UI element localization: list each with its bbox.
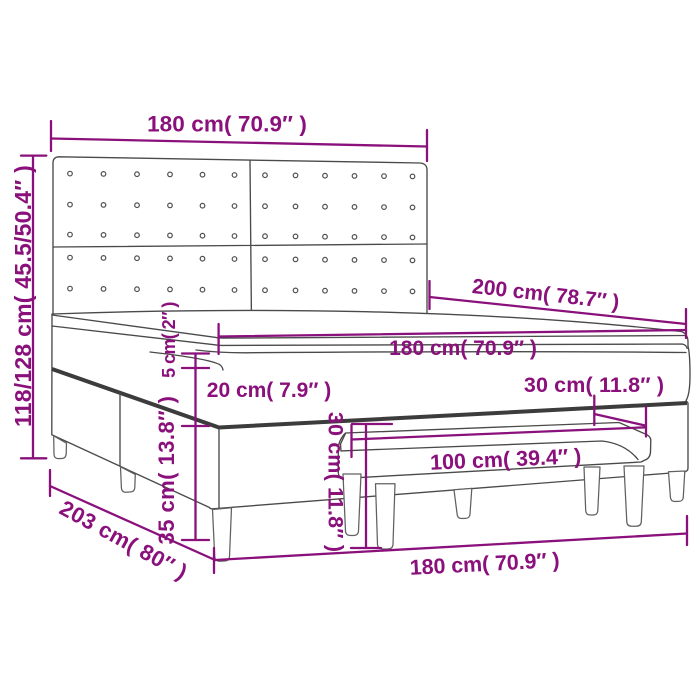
svg-text:35 cm( 13.8″ ): 35 cm( 13.8″ ) [154, 396, 179, 545]
svg-text:180 cm( 70.9″ ): 180 cm( 70.9″ ) [389, 337, 537, 360]
svg-text:180 cm( 70.9″ ): 180 cm( 70.9″ ) [147, 111, 307, 136]
svg-text:30 cm( 11.8″ ): 30 cm( 11.8″ ) [524, 373, 664, 397]
svg-text:30 cm( 11.8″ ): 30 cm( 11.8″ ) [324, 412, 348, 552]
svg-text:20 cm( 7.9″ ): 20 cm( 7.9″ ) [207, 379, 331, 402]
svg-text:5 cm( 2″ ): 5 cm( 2″ ) [159, 302, 179, 378]
svg-text:118/128 cm( 45.5/50.4″ ): 118/128 cm( 45.5/50.4″ ) [10, 165, 36, 427]
